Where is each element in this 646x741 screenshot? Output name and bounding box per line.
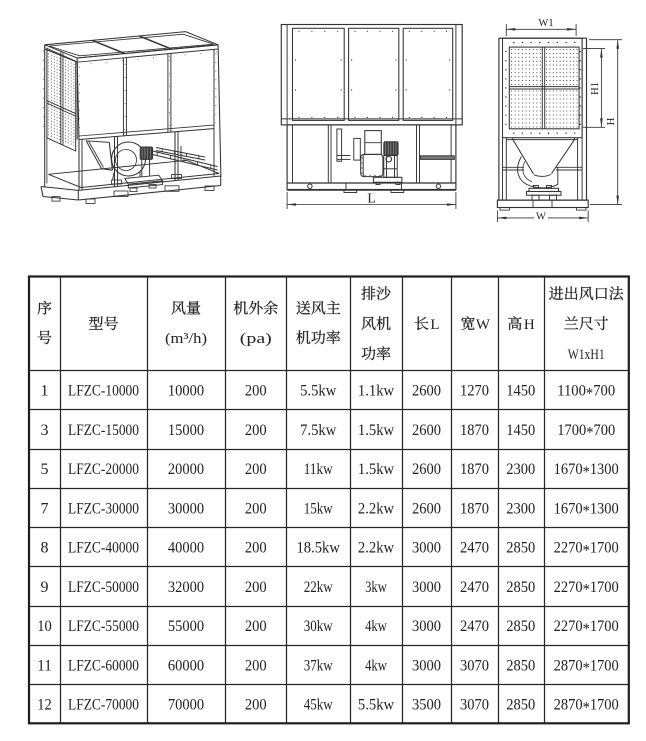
svg-text:30kw: 30kw [304,618,333,635]
svg-text:18.5kw: 18.5kw [296,540,340,557]
svg-text:1270: 1270 [460,383,489,400]
svg-text:5.5kw: 5.5kw [300,383,337,400]
svg-text:1.5kw: 1.5kw [358,422,395,439]
svg-text:3070: 3070 [460,657,489,674]
svg-text:12: 12 [37,697,52,714]
svg-text:15000: 15000 [168,422,204,439]
svg-text:32000: 32000 [168,579,204,596]
svg-text:30000: 30000 [168,500,204,517]
svg-text:2300: 2300 [506,500,535,517]
svg-text:(pa): (pa) [240,331,272,347]
svg-text:2270*1700: 2270*1700 [554,579,619,599]
svg-text:L: L [367,191,375,206]
svg-text:3: 3 [41,422,49,439]
svg-text:1: 1 [41,383,49,400]
svg-text:7.5kw: 7.5kw [300,422,337,439]
svg-text:W1: W1 [538,18,553,29]
svg-text:W: W [536,211,546,222]
svg-text:200: 200 [245,500,267,517]
svg-text:1870: 1870 [460,461,489,478]
svg-text:3kw: 3kw [365,579,387,596]
svg-text:3500: 3500 [412,697,441,714]
svg-text:45kw: 45kw [304,697,333,714]
svg-text:1700*700: 1700*700 [557,422,615,442]
svg-text:200: 200 [245,383,267,400]
svg-text:2270*1700: 2270*1700 [554,540,619,560]
svg-text:H: H [524,317,535,333]
svg-text:10: 10 [37,618,52,635]
svg-text:2870*1700: 2870*1700 [554,657,619,677]
svg-text:2300: 2300 [506,461,535,478]
svg-text:W1xH1: W1xH1 [568,347,605,363]
svg-text:1670*1300: 1670*1300 [554,500,619,520]
svg-text:1870: 1870 [460,500,489,517]
svg-text:3000: 3000 [412,657,441,674]
svg-text:LFZC-55000: LFZC-55000 [68,618,139,635]
svg-text:200: 200 [245,697,267,714]
svg-text:LFZC-30000: LFZC-30000 [68,500,139,517]
svg-text:2600: 2600 [412,500,441,517]
svg-text:55000: 55000 [168,618,204,635]
svg-text:2850: 2850 [506,697,535,714]
svg-text:200: 200 [245,540,267,557]
svg-text:200: 200 [245,579,267,596]
svg-text:2850: 2850 [506,579,535,596]
svg-text:2.2kw: 2.2kw [358,540,395,557]
svg-text:1450: 1450 [506,422,535,439]
svg-text:7: 7 [41,500,49,517]
svg-text:20000: 20000 [168,461,204,478]
svg-text:2600: 2600 [412,383,441,400]
svg-text:1.5kw: 1.5kw [358,461,395,478]
svg-text:3000: 3000 [412,540,441,557]
svg-text:H: H [606,117,617,125]
svg-text:1670*1300: 1670*1300 [554,461,619,481]
svg-text:2850: 2850 [506,618,535,635]
svg-text:200: 200 [245,618,267,635]
svg-text:LFZC-70000: LFZC-70000 [68,697,139,714]
svg-text:9: 9 [41,579,49,596]
svg-text:8: 8 [41,540,49,557]
svg-text:2470: 2470 [460,540,489,557]
svg-text:2.2kw: 2.2kw [358,500,395,517]
svg-text:3070: 3070 [460,697,489,714]
svg-text:LFZC-10000: LFZC-10000 [68,383,139,400]
svg-text:5.5kw: 5.5kw [358,697,395,714]
svg-text:200: 200 [245,422,267,439]
svg-text:60000: 60000 [168,657,204,674]
svg-text:22kw: 22kw [304,579,333,596]
svg-text:H1: H1 [590,82,601,95]
svg-text:LFZC-20000: LFZC-20000 [68,461,139,478]
svg-text:2270*1700: 2270*1700 [554,618,619,638]
svg-text:LFZC-40000: LFZC-40000 [68,540,139,557]
svg-text:37kw: 37kw [304,657,333,674]
svg-text:(m³/h): (m³/h) [165,331,207,347]
svg-text:1.1kw: 1.1kw [358,383,395,400]
svg-text:2600: 2600 [412,461,441,478]
svg-text:70000: 70000 [168,697,204,714]
svg-text:1450: 1450 [506,383,535,400]
svg-text:2470: 2470 [460,618,489,635]
svg-text:2870*1700: 2870*1700 [554,697,619,717]
svg-text:200: 200 [245,657,267,674]
svg-text:W: W [476,317,491,333]
svg-text:5: 5 [41,461,49,478]
svg-text:1100*700: 1100*700 [557,383,615,403]
svg-text:2850: 2850 [506,540,535,557]
svg-text:11: 11 [37,657,52,674]
svg-text:LFZC-15000: LFZC-15000 [68,422,139,439]
svg-text:15kw: 15kw [304,500,333,517]
svg-text:LFZC-60000: LFZC-60000 [68,657,139,674]
svg-text:40000: 40000 [168,540,204,557]
svg-text:3000: 3000 [412,579,441,596]
svg-text:200: 200 [245,461,267,478]
svg-text:1870: 1870 [460,422,489,439]
svg-text:10000: 10000 [168,383,204,400]
svg-text:3000: 3000 [412,618,441,635]
svg-text:2600: 2600 [412,422,441,439]
svg-text:LFZC-50000: LFZC-50000 [68,579,139,596]
svg-text:2470: 2470 [460,579,489,596]
svg-text:4kw: 4kw [365,618,387,635]
svg-text:4kw: 4kw [365,657,387,674]
svg-text:2850: 2850 [506,657,535,674]
svg-text:11kw: 11kw [304,461,333,478]
svg-text:L: L [430,317,439,333]
